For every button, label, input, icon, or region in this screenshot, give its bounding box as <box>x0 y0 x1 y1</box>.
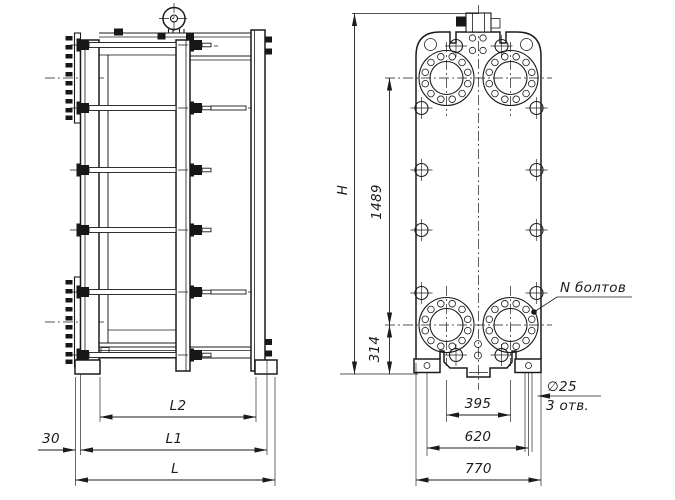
center-hole <box>475 352 482 359</box>
dim-label-314: 314 <box>367 336 383 363</box>
column-bolt <box>266 49 273 55</box>
dim-L2: L2 <box>100 398 256 417</box>
roller-front <box>456 17 466 27</box>
rear-foot <box>255 360 277 374</box>
corner-hole <box>425 39 437 51</box>
center-hole <box>469 35 475 41</box>
tie-bolt-hole <box>491 35 513 57</box>
tie-bolt-hole <box>411 219 433 241</box>
front-view-feet <box>414 359 541 373</box>
dim-1489: 1489 <box>369 78 390 325</box>
dim-label-L2: L2 <box>170 398 187 414</box>
dim-label-H: H <box>335 185 351 195</box>
dim-L: L <box>76 461 276 480</box>
side-view-dimensions: L2 L1 30 L <box>38 360 275 486</box>
callout-n-bolts: N болтов <box>531 280 632 315</box>
tie-bolt-hole <box>526 219 548 241</box>
dim-395: 395 <box>447 396 511 415</box>
tie-bolt-hole <box>411 159 433 181</box>
column-bolt <box>266 37 273 43</box>
dim-label-30: 30 <box>42 431 60 447</box>
column-bolt <box>266 351 273 357</box>
dim-30: 30 <box>38 431 76 450</box>
tie-bolt-hole <box>411 97 433 119</box>
hole-count-label: 3 отв. <box>546 398 589 414</box>
tie-bolt-hole <box>526 159 548 181</box>
dim-620: 620 <box>427 429 529 448</box>
dim-label-L: L <box>171 461 179 477</box>
dim-label-770: 770 <box>465 461 492 477</box>
tie-bolt-hole <box>526 97 548 119</box>
roller-assembly <box>158 3 195 40</box>
center-hole <box>475 341 482 348</box>
dim-770: 770 <box>416 461 541 480</box>
dim-label-L1: L1 <box>166 431 183 447</box>
dim-label-1489: 1489 <box>369 184 385 220</box>
n-bolts-label: N болтов <box>560 280 626 296</box>
tie-bolt-hole <box>526 282 548 304</box>
drawing-sheet: L2 L1 30 L <box>0 0 675 500</box>
dim-314: 314 <box>367 325 390 374</box>
center-hole <box>480 47 486 53</box>
center-hole <box>469 47 475 53</box>
side-view <box>45 3 277 374</box>
corner-hole <box>521 39 533 51</box>
bracket-front <box>491 19 500 29</box>
technical-drawing: L2 L1 30 L <box>0 0 675 500</box>
tie-bolt-hole <box>411 282 433 304</box>
foot-right <box>515 359 541 373</box>
front-foot <box>75 360 100 374</box>
callout-hole-spec: ∅25 3 отв. <box>538 379 602 414</box>
center-block <box>456 13 500 32</box>
front-view <box>385 5 552 390</box>
hole-dia-label: ∅25 <box>547 379 577 395</box>
dim-label-395: 395 <box>465 396 492 412</box>
column-bolt <box>266 339 273 345</box>
support-column <box>251 30 272 371</box>
fixed-plate-top-stud <box>114 29 123 36</box>
tie-bolt-hole <box>445 35 467 57</box>
fixed-plate <box>81 29 124 372</box>
dim-H: H <box>335 14 355 375</box>
dim-label-620: 620 <box>465 429 492 445</box>
movable-plate <box>176 40 190 371</box>
foot-left <box>414 359 440 373</box>
center-hole <box>480 35 486 41</box>
tie-bolt-hole <box>445 344 467 366</box>
dim-L1: L1 <box>81 431 268 450</box>
